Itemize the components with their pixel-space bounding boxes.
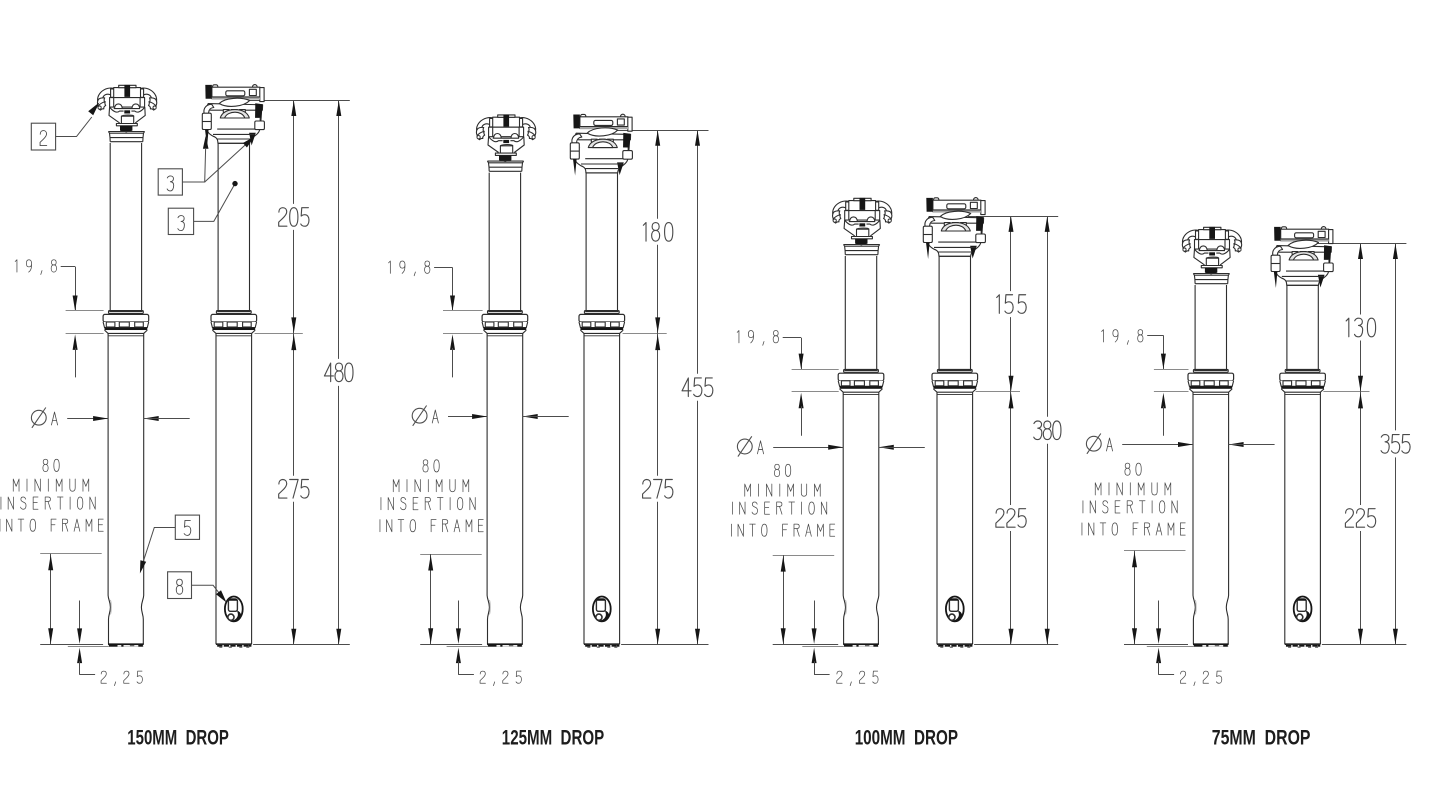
svg-text:125MM DROP: 125MM DROP	[502, 726, 604, 750]
svg-text:100MM DROP: 100MM DROP	[855, 726, 958, 750]
svg-text:150MM DROP: 150MM DROP	[127, 726, 229, 750]
svg-text:75MM DROP: 75MM DROP	[1212, 726, 1311, 750]
